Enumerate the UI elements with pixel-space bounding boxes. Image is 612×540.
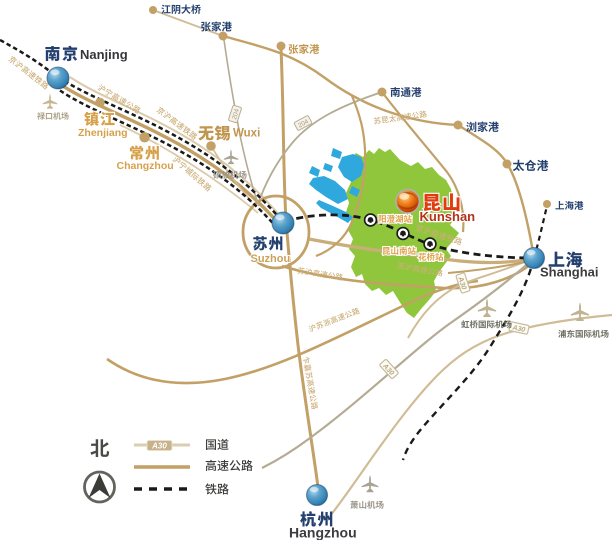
svg-text:A30: A30: [511, 324, 526, 334]
svg-text:Wuxi: Wuxi: [233, 128, 260, 140]
svg-text:A30: A30: [151, 442, 167, 451]
svg-text:Suzhou: Suzhou: [251, 253, 291, 265]
svg-text:Shanghai: Shanghai: [540, 265, 599, 280]
svg-text:Changzhou: Changzhou: [117, 160, 174, 172]
svg-text:Zhenjiang: Zhenjiang: [78, 127, 128, 139]
svg-text:Kunshan: Kunshan: [420, 209, 476, 224]
svg-text:Nanjing: Nanjing: [80, 47, 128, 62]
svg-text:Hangzhou: Hangzhou: [289, 525, 357, 540]
